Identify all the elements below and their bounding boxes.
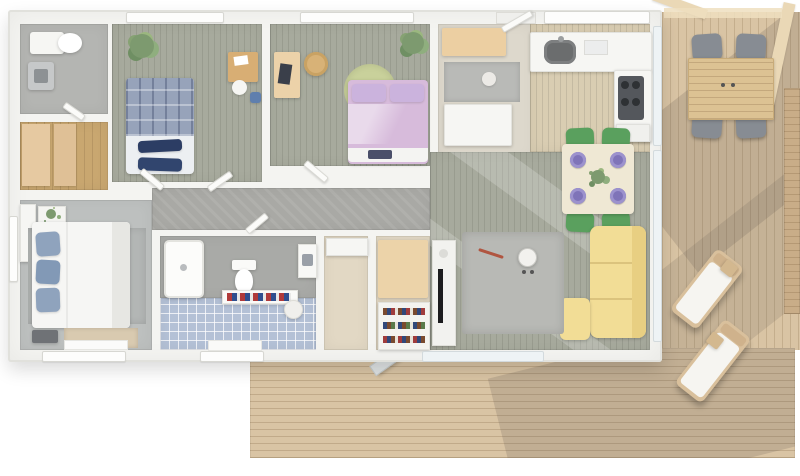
washer-door	[34, 69, 48, 83]
desk-chair	[232, 80, 247, 95]
sofa-seam	[590, 298, 632, 300]
faucet	[558, 36, 564, 42]
small-appliance	[584, 40, 608, 55]
bed-double-lilac	[348, 80, 428, 164]
window-kitchen	[544, 11, 650, 24]
laundry-basket	[284, 300, 303, 319]
burner	[621, 81, 629, 89]
wooden-stool	[304, 52, 328, 76]
closet-cabinet	[54, 124, 76, 186]
toilet-bowl	[58, 33, 82, 53]
plate	[570, 188, 586, 204]
stove-detail	[530, 270, 534, 274]
sofa-seam	[590, 262, 632, 264]
glass-wall-kitchen	[653, 26, 662, 146]
living-rug	[462, 232, 564, 334]
bedroom-bench	[32, 330, 58, 343]
bath-mat	[208, 340, 262, 351]
window-left	[9, 216, 18, 282]
glass-wall-right	[653, 150, 662, 342]
pergola-beam	[664, 8, 782, 18]
outdoor-chair	[735, 33, 766, 61]
pillow	[138, 139, 183, 153]
nightstand-plant	[46, 209, 56, 219]
shower-tray	[164, 240, 204, 298]
papers	[233, 55, 248, 66]
window-top	[300, 12, 414, 23]
outdoor-chair	[691, 33, 723, 61]
corridor-floor	[152, 188, 430, 230]
sofa-chaise	[560, 298, 590, 340]
pillow	[390, 84, 424, 102]
washing-machine	[28, 62, 54, 90]
laptop	[278, 63, 293, 84]
deck-shadow	[488, 348, 795, 458]
deck-fence	[784, 88, 800, 314]
desk	[228, 52, 258, 82]
towels	[227, 293, 291, 301]
burner	[621, 98, 629, 106]
washer-niche	[298, 244, 317, 278]
table-item	[731, 83, 735, 87]
entry-bench	[444, 104, 512, 146]
window-bottom	[200, 351, 264, 362]
desk	[274, 52, 300, 98]
plate	[570, 152, 586, 168]
wood-stove	[518, 248, 537, 267]
utility-cabinet	[326, 238, 368, 256]
duvet-sheen	[348, 104, 428, 144]
chair-blue	[250, 92, 261, 103]
plate	[610, 152, 626, 168]
vacuum-robot	[482, 72, 496, 86]
console-speaker	[439, 249, 448, 258]
bed-master	[32, 222, 130, 328]
bath-mat	[64, 340, 128, 350]
bed-foot-strip	[112, 222, 130, 328]
burner	[632, 81, 640, 89]
sofa-backrest	[632, 226, 646, 338]
outdoor-dining-table	[688, 58, 774, 120]
floor-plan-render	[0, 0, 800, 476]
burner	[632, 98, 640, 106]
window-bottom	[42, 351, 126, 362]
pillow	[352, 84, 386, 102]
washer-door	[302, 254, 313, 266]
pillow	[35, 231, 61, 257]
table-centerpiece	[591, 170, 605, 184]
storage-cabinet	[378, 240, 428, 298]
kitchen-sink	[544, 40, 576, 64]
plate	[610, 188, 626, 204]
duvet-fold	[66, 222, 68, 328]
bookshelf	[378, 302, 430, 350]
stove-detail	[522, 270, 526, 274]
closet-cabinet	[22, 124, 50, 186]
tv-screen	[438, 269, 443, 323]
bed-double-plaid	[126, 78, 194, 174]
books-row	[383, 308, 425, 315]
potted-plant	[130, 34, 154, 58]
tv-console	[432, 240, 456, 346]
dining-table	[562, 144, 634, 214]
plaid-duvet	[126, 78, 194, 136]
table-item	[721, 83, 725, 87]
books-row	[383, 336, 425, 343]
folded-blanket	[368, 150, 392, 159]
books-row	[383, 322, 425, 329]
cooktop	[618, 76, 644, 120]
shower-drain	[180, 264, 187, 271]
window-top	[126, 12, 224, 23]
potted-plant	[402, 32, 424, 54]
sliding-glass-door-bottom	[422, 351, 544, 362]
sofa-main	[590, 226, 646, 338]
pillow	[35, 259, 60, 284]
entry-wardrobe	[442, 28, 506, 56]
pillow	[36, 288, 61, 313]
